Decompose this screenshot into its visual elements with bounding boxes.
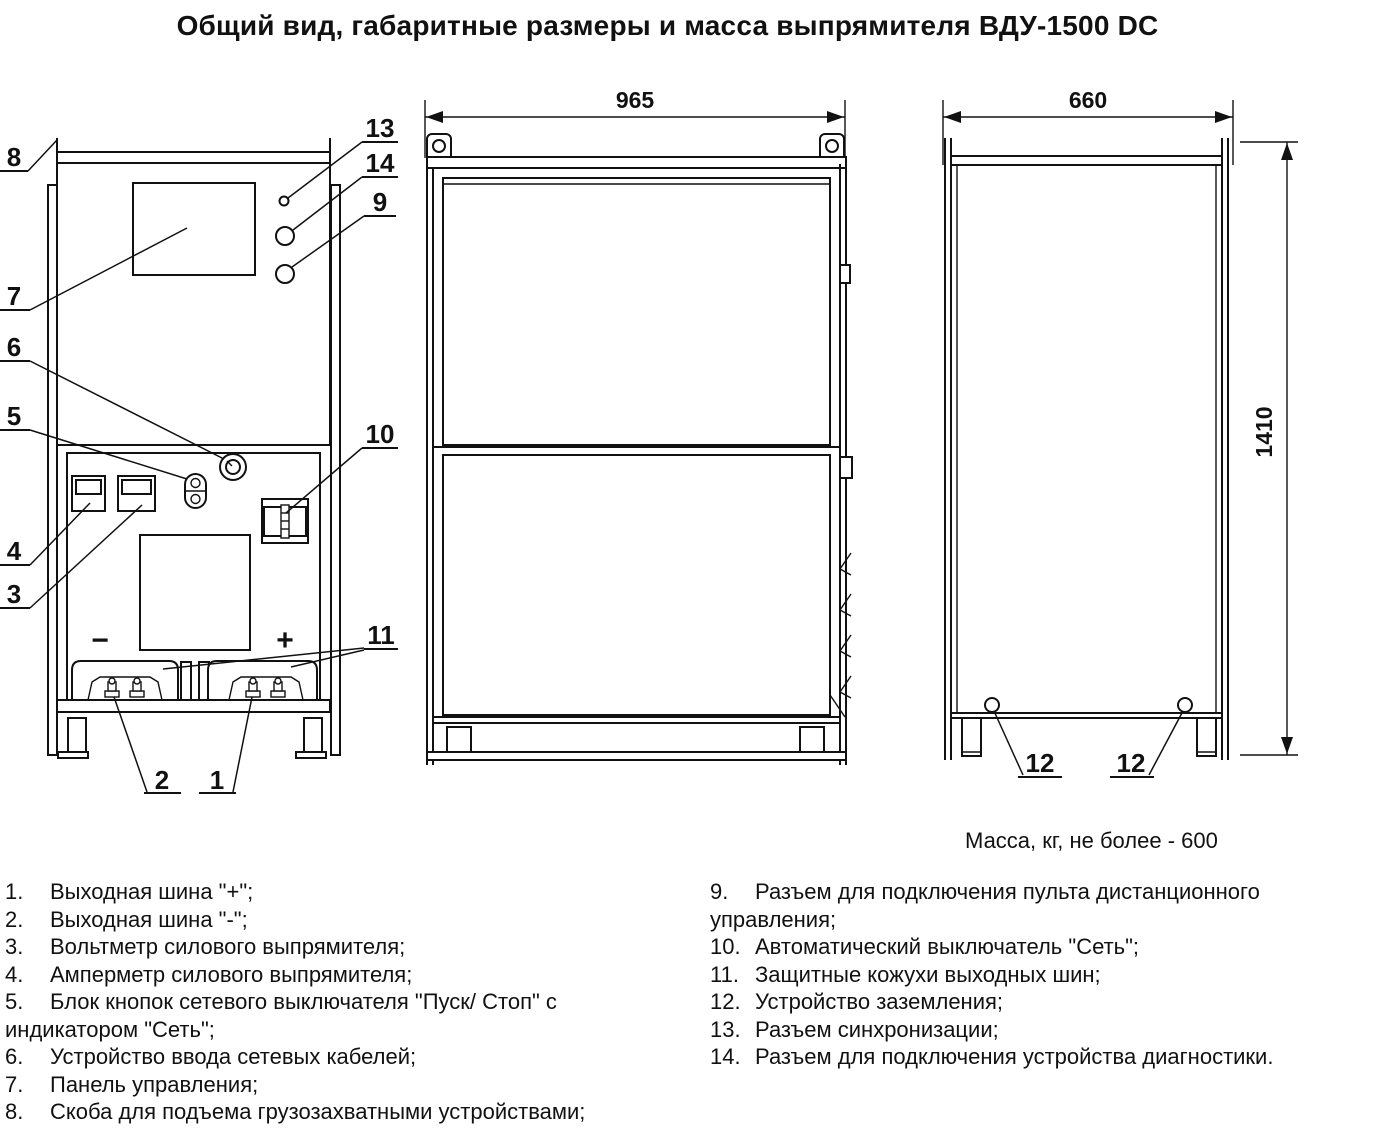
legend-item-1: 1.Выходная шина "+"; — [5, 878, 655, 906]
side-view-965: 965 — [425, 87, 852, 765]
plus-sign: + — [276, 624, 294, 657]
legend-number: 8. — [5, 1098, 50, 1126]
legend-item-4: 4.Амперметр силового выпрямителя; — [5, 961, 655, 989]
legend-text: Защитные кожухи выходных шин; — [755, 962, 1101, 987]
legend-number: 5. — [5, 988, 50, 1016]
legend-item-9: 9.Разъем для подключения пульта дистанци… — [710, 878, 1335, 933]
callout-6: 6 — [7, 332, 21, 362]
legend-text: Устройство заземления; — [755, 989, 1003, 1014]
dimension-1410: 1410 — [1251, 406, 1277, 457]
legend-text: Амперметр силового выпрямителя; — [50, 962, 412, 987]
legend-number: 6. — [5, 1043, 50, 1071]
grounding-device — [985, 698, 999, 712]
dimension-965: 965 — [616, 87, 655, 113]
legend-item-11: 11.Защитные кожухи выходных шин; — [710, 961, 1335, 989]
voltmeter — [118, 476, 155, 511]
legend-item-2: 2.Выходная шина "-"; — [5, 906, 655, 934]
legend-text: Выходная шина "-"; — [50, 907, 248, 932]
legend-number: 7. — [5, 1071, 50, 1099]
callout-7: 7 — [7, 281, 21, 311]
callout-2: 2 — [155, 765, 169, 795]
ammeter — [72, 476, 105, 511]
callout-12: 12 — [1117, 748, 1146, 778]
minus-sign: − — [91, 624, 109, 657]
callout-1: 1 — [210, 765, 224, 795]
legend-item-12: 12.Устройство заземления; — [710, 988, 1335, 1016]
callout-9: 9 — [373, 187, 387, 217]
dimension-660: 660 — [1069, 87, 1107, 113]
legend-number: 2. — [5, 906, 50, 934]
callout-11: 11 — [367, 620, 395, 650]
legend-item-3: 3.Вольтметр силового выпрямителя; — [5, 933, 655, 961]
legend-right-column: 9.Разъем для подключения пульта дистанци… — [710, 878, 1335, 1071]
legend-number: 4. — [5, 961, 50, 989]
bus-cover-minus — [72, 661, 178, 700]
callout-10: 10 — [366, 419, 395, 449]
legend-number: 11. — [710, 961, 755, 989]
legend-number: 9. — [710, 878, 755, 906]
legend-number: 3. — [5, 933, 50, 961]
legend-text: Скоба для подъема грузозахватными устрой… — [50, 1099, 585, 1124]
diagnostics-connector — [276, 227, 294, 245]
legend-item-14: 14.Разъем для подключения устройства диа… — [710, 1043, 1335, 1071]
legend-number: 13. — [710, 1016, 755, 1044]
callout-8: 8 — [7, 142, 21, 172]
drawing-sheet: Общий вид, габаритные размеры и масса вы… — [0, 0, 1400, 1129]
lifting-bracket — [57, 152, 330, 163]
callout-12: 12 — [1026, 748, 1055, 778]
technical-drawing: − + 8 13 14 9 7 6 5 10 4 3 11 — [0, 0, 1400, 870]
legend-item-13: 13.Разъем синхронизации; — [710, 1016, 1335, 1044]
legend-text: Вольтметр силового выпрямителя; — [50, 934, 405, 959]
grounding-device — [1178, 698, 1192, 712]
legend-text: Блок кнопок сетевого выключателя "Пуск/ … — [5, 989, 557, 1042]
legend-text: Разъем для подключения пульта дистанцион… — [710, 879, 1260, 932]
front-view: − + — [48, 138, 340, 758]
bus-cover-plus — [208, 661, 317, 700]
legend-text: Устройство ввода сетевых кабелей; — [50, 1044, 416, 1069]
sync-connector — [280, 197, 289, 206]
legend-item-7: 7.Панель управления; — [5, 1071, 655, 1099]
callout-4: 4 — [7, 536, 22, 566]
legend-item-5: 5.Блок кнопок сетевого выключателя "Пуск… — [5, 988, 655, 1043]
legend-text: Разъем для подключения устройства диагно… — [755, 1044, 1273, 1069]
callout-5: 5 — [7, 401, 21, 431]
legend-text: Выходная шина "+"; — [50, 879, 253, 904]
legend-item-8: 8.Скоба для подъема грузозахватными устр… — [5, 1098, 655, 1126]
callout-14: 14 — [366, 148, 395, 178]
legend-text: Панель управления; — [50, 1072, 258, 1097]
mains-breaker — [262, 499, 308, 543]
control-panel-display — [133, 183, 255, 275]
legend-item-6: 6.Устройство ввода сетевых кабелей; — [5, 1043, 655, 1071]
start-stop-button-block — [185, 474, 206, 508]
legend-item-10: 10.Автоматический выключатель "Сеть"; — [710, 933, 1335, 961]
legend-number: 10. — [710, 933, 755, 961]
legend-text: Разъем синхронизации; — [755, 1017, 999, 1042]
remote-control-connector — [276, 265, 294, 283]
legend-number: 12. — [710, 988, 755, 1016]
side-view-660: 660 1410 12 — [943, 87, 1298, 778]
legend-text: Автоматический выключатель "Сеть"; — [755, 934, 1139, 959]
legend-left-column: 1.Выходная шина "+"; 2.Выходная шина "-"… — [5, 878, 655, 1126]
legend-number: 14. — [710, 1043, 755, 1071]
callout-13: 13 — [366, 113, 395, 143]
mass-note: Масса, кг, не более - 600 — [965, 828, 1218, 853]
callout-3: 3 — [7, 579, 21, 609]
legend-number: 1. — [5, 878, 50, 906]
cable-entry-device — [220, 454, 246, 480]
